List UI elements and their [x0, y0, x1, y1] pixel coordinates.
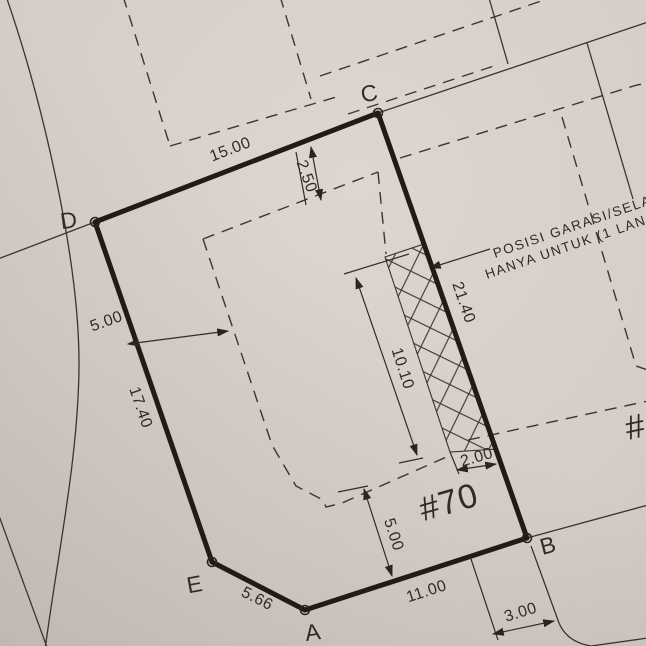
scanned-site-plan: 15.00 2.50 5.00 17.40 21.40 10.10 2.00 5… — [0, 0, 646, 646]
survey-drawing-canvas: 15.00 2.50 5.00 17.40 21.40 10.10 2.00 5… — [0, 0, 646, 646]
vertex-label-d: D — [59, 206, 80, 234]
